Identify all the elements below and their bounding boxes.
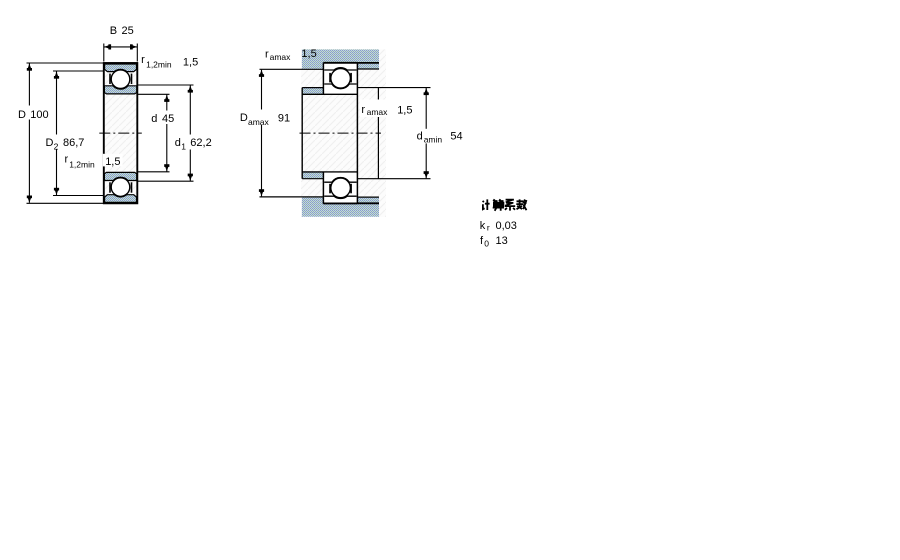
svg-text:0: 0 <box>484 238 489 248</box>
svg-text:100: 100 <box>30 109 48 121</box>
svg-text:1,2min: 1,2min <box>69 160 95 170</box>
svg-text:45: 45 <box>162 113 174 125</box>
svg-text:91: 91 <box>278 112 290 124</box>
svg-text:amax: amax <box>367 107 389 117</box>
svg-text:1,5: 1,5 <box>397 104 412 116</box>
svg-text:1,2min: 1,2min <box>146 59 172 69</box>
svg-text:D: D <box>18 109 26 121</box>
svg-text:amax: amax <box>270 52 292 62</box>
svg-text:d: d <box>175 137 181 149</box>
svg-text:amax: amax <box>248 117 270 127</box>
svg-text:1: 1 <box>181 142 186 152</box>
svg-text:25: 25 <box>122 25 134 37</box>
svg-text:r: r <box>141 54 145 66</box>
svg-text:d: d <box>417 131 423 143</box>
svg-text:k: k <box>480 220 486 232</box>
svg-text:2: 2 <box>54 141 59 151</box>
svg-text:r: r <box>265 48 269 60</box>
svg-text:r: r <box>487 223 490 233</box>
svg-text:1,5: 1,5 <box>183 57 198 69</box>
svg-text:62,2: 62,2 <box>190 137 211 149</box>
svg-text:54: 54 <box>450 131 462 143</box>
svg-text:amin: amin <box>424 134 443 144</box>
svg-text:13: 13 <box>496 235 508 247</box>
svg-text:1,5: 1,5 <box>301 48 316 60</box>
svg-text:B: B <box>110 25 117 37</box>
svg-text:r: r <box>361 104 365 116</box>
svg-text:1,5: 1,5 <box>105 156 120 168</box>
svg-text:D: D <box>46 137 54 149</box>
svg-text:d: d <box>151 113 157 125</box>
svg-text:86,7: 86,7 <box>63 137 84 149</box>
svg-text:0,03: 0,03 <box>496 220 517 232</box>
svg-text:D: D <box>240 112 248 124</box>
svg-text:r: r <box>65 154 69 166</box>
